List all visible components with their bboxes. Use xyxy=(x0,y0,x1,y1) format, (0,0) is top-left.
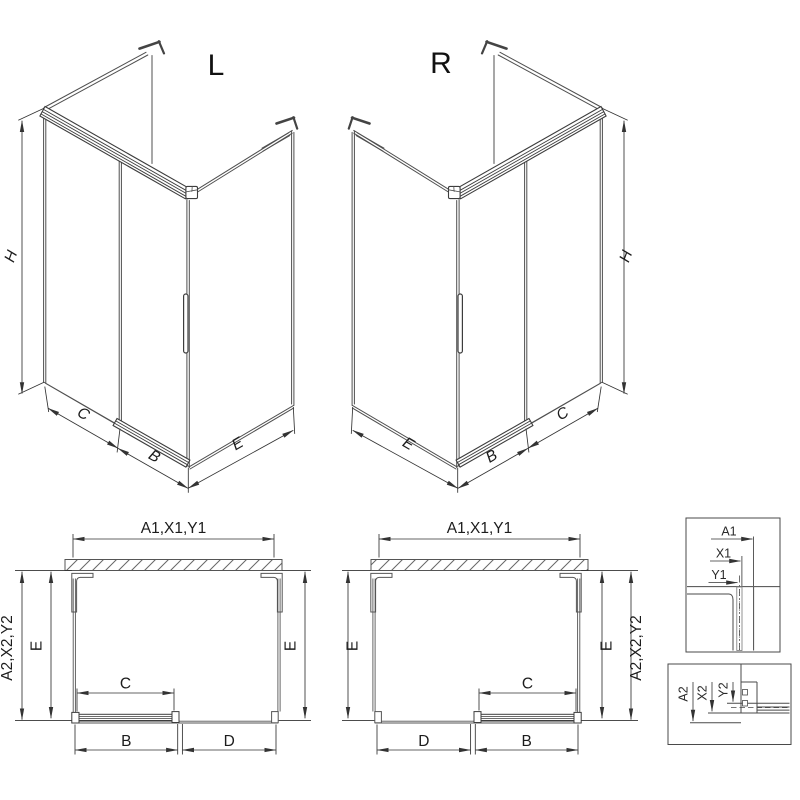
plan-left-label-b: B xyxy=(121,733,131,750)
plan-right-label-e-right: E xyxy=(599,641,616,651)
plan-right-label-c: C xyxy=(522,676,533,693)
plan-left-label-d: D xyxy=(224,733,235,750)
plan-left-label-e-left: E xyxy=(29,641,46,651)
plan-left-label-e-right: E xyxy=(283,641,300,651)
plan-right-label-top: A1,X1,Y1 xyxy=(447,520,513,537)
plan-right-label-d: D xyxy=(418,733,429,750)
detail-label-x1: X1 xyxy=(716,547,731,561)
detail-label-y2: Y2 xyxy=(717,682,731,697)
detail-label-y1: Y1 xyxy=(711,568,726,582)
wall-hatch-left-plan xyxy=(65,560,282,571)
plan-left-label-top: A1,X1,Y1 xyxy=(141,520,207,537)
detail-label-a1: A1 xyxy=(721,525,736,539)
view-label-L: L xyxy=(208,49,225,82)
plan-left-label-side: A2,X2,Y2 xyxy=(0,615,16,681)
plan-right-label-b: B xyxy=(522,733,532,750)
detail-label-x2: X2 xyxy=(696,685,710,700)
detail-rail-tab-2 xyxy=(743,701,748,707)
shower-enclosure-drawing: L R H C B E H E B C A1,X1,Y1 A2,X2,Y2 E … xyxy=(0,0,800,800)
detail-label-a2: A2 xyxy=(677,686,691,701)
wall-hatch-right-plan xyxy=(371,560,588,571)
view-label-R: R xyxy=(430,47,452,80)
technical-drawing-page: L R H C B E H E B C A1,X1,Y1 A2,X2,Y2 E … xyxy=(0,0,800,800)
detail-rail-tab-1 xyxy=(743,690,748,696)
plan-right-label-side: A2,X2,Y2 xyxy=(628,615,645,681)
plan-right-label-e-left: E xyxy=(345,641,362,651)
plan-left-label-c: C xyxy=(120,676,131,693)
